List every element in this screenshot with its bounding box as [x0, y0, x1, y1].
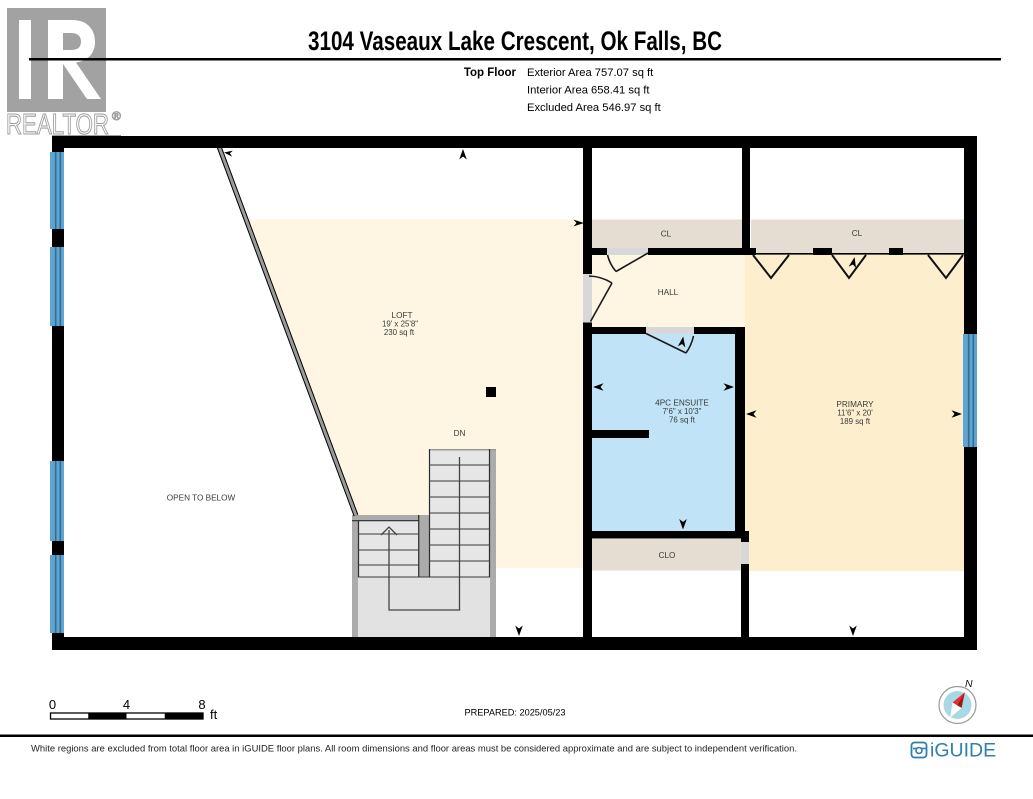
svg-text:N: N: [965, 678, 973, 690]
svg-text:DN: DN: [454, 429, 466, 438]
svg-text:White regions are excluded fro: White regions are excluded from total fl…: [31, 744, 797, 755]
svg-text:3104 Vaseaux Lake Crescent, Ok: 3104 Vaseaux Lake Crescent, Ok Falls, BC: [308, 26, 722, 56]
svg-text:ft: ft: [210, 707, 218, 722]
svg-text:iGUIDE: iGUIDE: [930, 740, 996, 762]
svg-text:Excluded Area 546.97 sq ft: Excluded Area 546.97 sq ft: [527, 102, 662, 114]
svg-text:Exterior Area 757.07 sq ft: Exterior Area 757.07 sq ft: [527, 67, 654, 79]
svg-text:HALL: HALL: [658, 288, 679, 297]
svg-text:CLO: CLO: [659, 551, 676, 560]
svg-text:230 sq ft: 230 sq ft: [384, 328, 415, 337]
svg-text:189 sq ft: 189 sq ft: [840, 417, 871, 426]
svg-text:76 sq ft: 76 sq ft: [669, 416, 696, 425]
svg-text:Top Floor: Top Floor: [464, 67, 517, 79]
svg-text:OPEN TO BELOW: OPEN TO BELOW: [167, 494, 236, 503]
svg-text:0: 0: [49, 697, 56, 712]
svg-text:4: 4: [123, 697, 130, 712]
svg-text:PREPARED: 2025/05/23: PREPARED: 2025/05/23: [465, 708, 566, 718]
svg-text:Interior Area 658.41 sq ft: Interior Area 658.41 sq ft: [527, 85, 650, 97]
svg-text:CL: CL: [852, 229, 863, 238]
svg-text:CL: CL: [661, 230, 672, 239]
svg-text:8: 8: [198, 697, 205, 712]
svg-text:®: ®: [112, 109, 121, 123]
